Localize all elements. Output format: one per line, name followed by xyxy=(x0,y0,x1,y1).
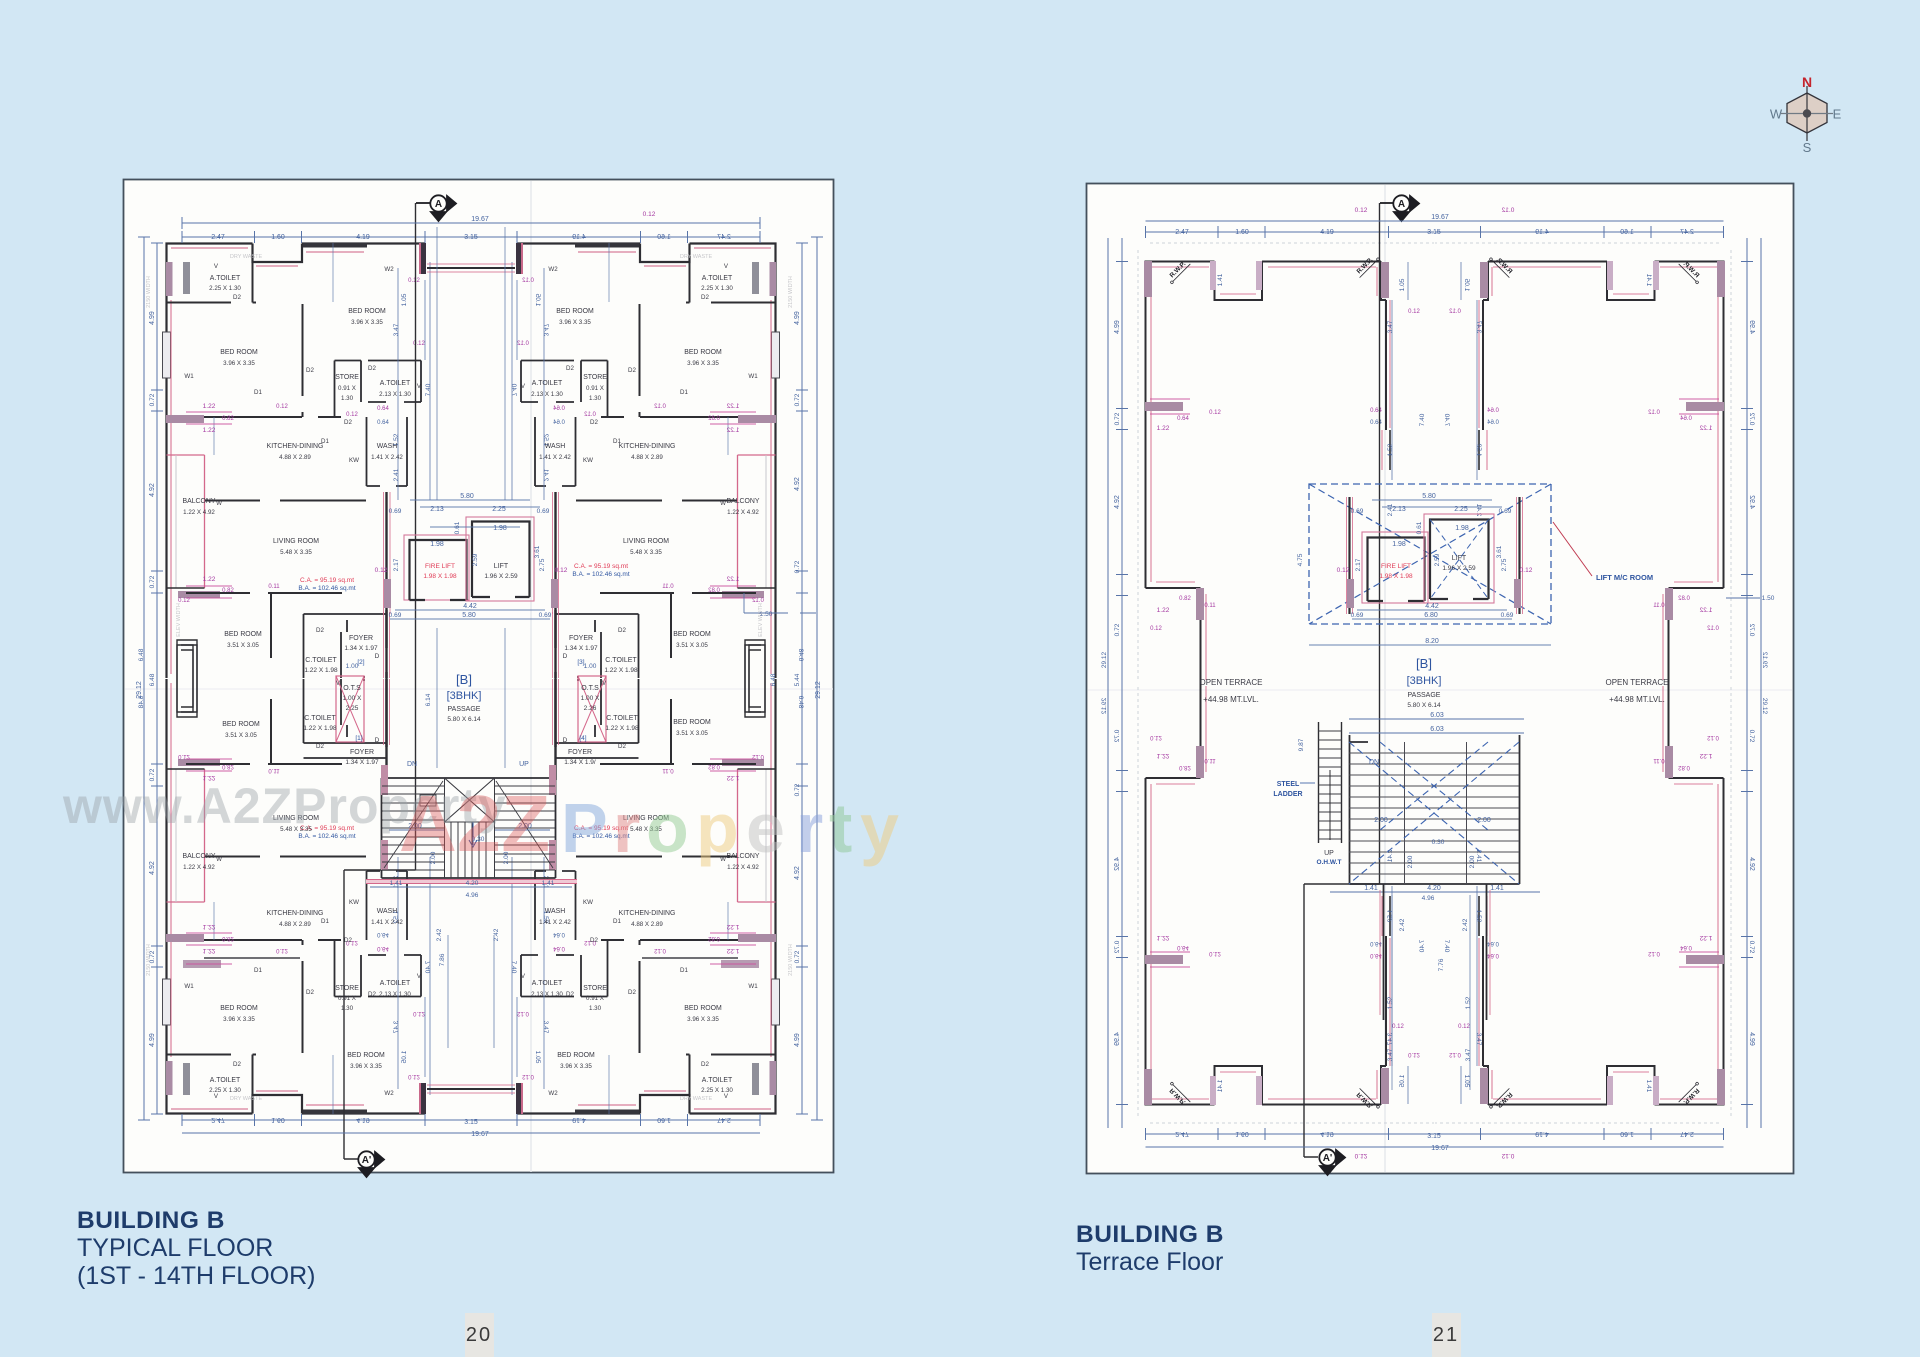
svg-text:1.98: 1.98 xyxy=(430,541,444,548)
svg-text:29.12: 29.12 xyxy=(136,681,143,699)
svg-text:4.42: 4.42 xyxy=(463,603,477,610)
svg-text:DRY WASTE: DRY WASTE xyxy=(230,1096,263,1102)
svg-text:6.14: 6.14 xyxy=(425,693,432,706)
svg-text:2.00: 2.00 xyxy=(1407,855,1414,868)
svg-text:LIFT M/C ROOM: LIFT M/C ROOM xyxy=(1596,573,1653,582)
svg-text:KW: KW xyxy=(583,899,593,906)
svg-text:1.52: 1.52 xyxy=(1465,996,1472,1009)
svg-text:0.69: 0.69 xyxy=(537,508,550,515)
svg-text:FOYER: FOYER xyxy=(350,749,374,756)
svg-text:C.A. = 95.19 sq.mt: C.A. = 95.19 sq.mt xyxy=(300,577,354,584)
svg-text:OPEN TERRACE: OPEN TERRACE xyxy=(1200,678,1263,687)
svg-text:[4]: [4] xyxy=(579,735,586,742)
svg-text:e: e xyxy=(746,789,785,867)
svg-text:C.TOILET: C.TOILET xyxy=(305,657,337,664)
svg-text:D2: D2 xyxy=(316,627,324,634)
svg-text:3.96 X 3.35: 3.96 X 3.35 xyxy=(559,319,591,326)
svg-text:t: t xyxy=(829,789,852,867)
svg-text:D1: D1 xyxy=(254,389,262,396)
svg-text:O.H.W.T: O.H.W.T xyxy=(1317,859,1342,866)
svg-text:0.69: 0.69 xyxy=(539,612,552,619)
svg-text:2.25: 2.25 xyxy=(492,506,506,513)
svg-text:6.48: 6.48 xyxy=(770,673,777,686)
svg-text:[3BHK]: [3BHK] xyxy=(447,690,482,702)
svg-text:O.T.S: O.T.S xyxy=(581,685,599,692)
svg-text:D2: D2 xyxy=(344,937,352,944)
svg-text:1.98: 1.98 xyxy=(1392,541,1406,548)
svg-text:C.A. = 95.19 sq.mt: C.A. = 95.19 sq.mt xyxy=(574,563,628,570)
svg-text:2.13: 2.13 xyxy=(1392,506,1406,513)
svg-text:UP: UP xyxy=(1324,850,1334,857)
svg-text:DN: DN xyxy=(407,761,417,768)
svg-text:4.92: 4.92 xyxy=(149,861,156,875)
svg-text:W2: W2 xyxy=(548,1090,558,1097)
svg-text:0.61: 0.61 xyxy=(1416,521,1423,534)
svg-text:0.69: 0.69 xyxy=(389,612,402,619)
svg-text:3.47: 3.47 xyxy=(1465,1048,1472,1061)
svg-text:BUILDING B: BUILDING B xyxy=(77,1207,225,1234)
svg-text:2.25: 2.25 xyxy=(346,705,359,712)
svg-text:[B]: [B] xyxy=(1416,656,1432,671)
svg-text:TYPICAL FLOOR: TYPICAL FLOOR xyxy=(77,1234,273,1262)
svg-text:B.A. = 102.46 sq.mt: B.A. = 102.46 sq.mt xyxy=(298,585,355,592)
svg-text:r: r xyxy=(796,789,823,867)
svg-text:DN: DN xyxy=(1369,759,1379,766)
svg-text:1.41 X 2.42: 1.41 X 2.42 xyxy=(539,454,571,461)
svg-text:4.88 X 2.89: 4.88 X 2.89 xyxy=(279,454,311,461)
svg-text:19.67: 19.67 xyxy=(471,1131,489,1138)
svg-text:STORE: STORE xyxy=(335,374,359,381)
svg-text:LADDER: LADDER xyxy=(1273,791,1302,798)
svg-text:1.96 X 2.59: 1.96 X 2.59 xyxy=(1442,565,1476,572)
svg-text:6.80: 6.80 xyxy=(1424,612,1438,619)
svg-text:0.91 X: 0.91 X xyxy=(586,995,604,1002)
svg-text:4.75: 4.75 xyxy=(1297,553,1304,566)
svg-text:A.TOILET: A.TOILET xyxy=(702,275,733,282)
svg-text:BALCONY: BALCONY xyxy=(183,853,216,860)
svg-text:OPEN TERRACE: OPEN TERRACE xyxy=(1606,678,1669,687)
svg-text:1.00 X: 1.00 X xyxy=(581,695,600,702)
svg-text:2.00: 2.00 xyxy=(1469,855,1476,868)
svg-text:0.12: 0.12 xyxy=(1337,567,1350,574)
svg-text:1.41 X 2.42: 1.41 X 2.42 xyxy=(371,454,403,461)
svg-text:KITCHEN-DINING: KITCHEN-DINING xyxy=(267,443,324,450)
svg-text:0.12: 0.12 xyxy=(1458,1024,1470,1030)
svg-text:D1: D1 xyxy=(254,967,262,974)
svg-text:BED ROOM: BED ROOM xyxy=(224,631,262,638)
svg-text:BED ROOM: BED ROOM xyxy=(684,349,722,356)
svg-text:3.51 X 3.05: 3.51 X 3.05 xyxy=(227,642,259,649)
svg-text:A.TOILET: A.TOILET xyxy=(532,380,563,387)
svg-text:N: N xyxy=(1802,74,1812,90)
svg-text:2.59: 2.59 xyxy=(1434,553,1441,566)
svg-text:5.80: 5.80 xyxy=(1422,493,1436,500)
svg-text:ELEV WIDTH: ELEV WIDTH xyxy=(176,603,182,637)
svg-text:5.80: 5.80 xyxy=(460,493,474,500)
svg-text:D2: D2 xyxy=(628,989,636,996)
svg-text:A: A xyxy=(435,199,442,210)
svg-text:LIVING ROOM: LIVING ROOM xyxy=(623,538,669,545)
svg-text:0.91 X: 0.91 X xyxy=(338,385,356,392)
svg-text:2150 WIDTH: 2150 WIDTH xyxy=(146,276,152,308)
svg-text:2.42: 2.42 xyxy=(1462,918,1469,931)
svg-text:FIRE LIFT: FIRE LIFT xyxy=(1381,563,1411,570)
svg-text:0.12: 0.12 xyxy=(555,567,568,574)
svg-text:3.96 X 3.35: 3.96 X 3.35 xyxy=(687,360,719,367)
svg-text:2.13 X 1.30: 2.13 X 1.30 xyxy=(379,391,411,398)
svg-text:2150 WIDTH: 2150 WIDTH xyxy=(788,276,794,308)
svg-text:4.99: 4.99 xyxy=(149,1033,156,1047)
svg-text:4.92: 4.92 xyxy=(794,866,801,880)
svg-text:4.88 X 2.89: 4.88 X 2.89 xyxy=(631,454,663,461)
svg-text:D1: D1 xyxy=(613,438,621,445)
svg-text:2.25 X 1.30: 2.25 X 1.30 xyxy=(209,285,241,292)
svg-text:UP: UP xyxy=(519,761,529,768)
svg-text:D2: D2 xyxy=(566,991,574,998)
svg-text:BED ROOM: BED ROOM xyxy=(556,308,594,315)
svg-text:4.99: 4.99 xyxy=(794,1033,801,1047)
svg-text:1.41 X 2.42: 1.41 X 2.42 xyxy=(539,919,571,926)
svg-text:3.47: 3.47 xyxy=(1387,1048,1394,1061)
svg-text:D: D xyxy=(563,653,568,660)
svg-text:1.22 X 4.92: 1.22 X 4.92 xyxy=(183,509,215,516)
svg-text:3.15: 3.15 xyxy=(464,1119,478,1126)
svg-text:1.41 X 2.42: 1.41 X 2.42 xyxy=(371,919,403,926)
svg-text:1.30: 1.30 xyxy=(341,1005,354,1012)
svg-text:W1: W1 xyxy=(184,373,194,380)
svg-text:2.00: 2.00 xyxy=(1374,817,1388,824)
svg-text:BALCONY: BALCONY xyxy=(183,498,216,505)
svg-text:D1: D1 xyxy=(321,918,329,925)
svg-text:1.41: 1.41 xyxy=(390,880,403,887)
svg-text:3.96 X 3.35: 3.96 X 3.35 xyxy=(351,319,383,326)
svg-text:3.61: 3.61 xyxy=(1496,545,1503,558)
svg-text:1.30: 1.30 xyxy=(589,395,602,402)
svg-text:2.00: 2.00 xyxy=(1477,817,1491,824)
svg-text:B.A. = 102.46 sq.mt: B.A. = 102.46 sq.mt xyxy=(572,571,629,578)
svg-text:1.96 X 2.59: 1.96 X 2.59 xyxy=(484,573,518,580)
svg-text:V: V xyxy=(602,681,606,687)
svg-text:1.41: 1.41 xyxy=(542,880,555,887)
svg-text:W: W xyxy=(216,856,222,863)
svg-text:1.30: 1.30 xyxy=(341,395,354,402)
svg-text:(1ST - 14TH FLOOR): (1ST - 14TH FLOOR) xyxy=(77,1262,315,1290)
svg-text:1.34 X 1.97: 1.34 X 1.97 xyxy=(345,759,379,766)
svg-text:0.69: 0.69 xyxy=(1351,612,1364,619)
svg-text:C.TOILET: C.TOILET xyxy=(304,715,336,722)
svg-text:D2: D2 xyxy=(701,1061,709,1068)
svg-text:1.98 X 1.98: 1.98 X 1.98 xyxy=(423,573,457,580)
svg-text:BED ROOM: BED ROOM xyxy=(684,1005,722,1012)
svg-text:D2: D2 xyxy=(618,627,626,634)
svg-text:29.12: 29.12 xyxy=(815,681,822,699)
svg-text:D1: D1 xyxy=(613,918,621,925)
svg-text:KW: KW xyxy=(349,899,359,906)
svg-text:3.15: 3.15 xyxy=(1427,229,1441,236)
svg-text:2.25 X 1.30: 2.25 X 1.30 xyxy=(701,285,733,292)
svg-text:1.22 X 1.98: 1.22 X 1.98 xyxy=(303,725,337,732)
svg-text:0.12: 0.12 xyxy=(1520,567,1533,574)
svg-text:0.30: 0.30 xyxy=(1432,839,1445,846)
svg-text:4.96: 4.96 xyxy=(1422,895,1435,902)
svg-text:O.T.S: O.T.S xyxy=(343,685,361,692)
svg-text:0.72: 0.72 xyxy=(794,560,801,573)
svg-text:WASH: WASH xyxy=(545,908,565,915)
svg-text:WASH: WASH xyxy=(545,443,565,450)
svg-text:DRY WASTE: DRY WASTE xyxy=(680,1096,713,1102)
svg-text:2.26: 2.26 xyxy=(584,705,597,712)
svg-text:W: W xyxy=(1770,107,1783,122)
svg-text:DRY WASTE: DRY WASTE xyxy=(230,254,263,260)
svg-text:4.88 X 2.89: 4.88 X 2.89 xyxy=(279,921,311,928)
svg-text:6.48: 6.48 xyxy=(149,673,156,686)
svg-text:W2: W2 xyxy=(384,266,394,273)
svg-text:3.96 X 3.35: 3.96 X 3.35 xyxy=(223,360,255,367)
svg-text:21: 21 xyxy=(1433,1324,1459,1346)
svg-text:3.51 X 3.05: 3.51 X 3.05 xyxy=(676,730,708,737)
svg-text:W2: W2 xyxy=(384,1090,394,1097)
svg-text:2150 WIDTH: 2150 WIDTH xyxy=(146,944,152,976)
svg-text:1.52: 1.52 xyxy=(1387,996,1394,1009)
svg-text:W1: W1 xyxy=(184,983,194,990)
svg-text:0.61: 0.61 xyxy=(454,521,461,534)
svg-text:3.51 X 3.05: 3.51 X 3.05 xyxy=(676,642,708,649)
svg-text:LIVING ROOM: LIVING ROOM xyxy=(273,538,319,545)
svg-text:BED ROOM: BED ROOM xyxy=(347,1052,385,1059)
svg-text:P: P xyxy=(561,789,608,867)
svg-text:0.12: 0.12 xyxy=(375,567,388,574)
svg-text:STORE: STORE xyxy=(335,985,359,992)
svg-text:2.13 X 1.30: 2.13 X 1.30 xyxy=(379,991,411,998)
svg-text:FOYER: FOYER xyxy=(349,635,373,642)
svg-text:5.44: 5.44 xyxy=(794,673,801,686)
svg-text:r: r xyxy=(613,789,640,867)
svg-text:0.69: 0.69 xyxy=(389,508,402,515)
svg-text:[3BHK]: [3BHK] xyxy=(1407,675,1442,687)
svg-text:Terrace Floor: Terrace Floor xyxy=(1076,1248,1223,1276)
svg-text:3.61: 3.61 xyxy=(534,545,541,558)
svg-text:2.59: 2.59 xyxy=(472,553,479,566)
svg-text:3.15: 3.15 xyxy=(1427,1133,1441,1140)
svg-text:A: A xyxy=(1398,199,1405,210)
svg-text:2.13: 2.13 xyxy=(430,506,444,513)
svg-text:D1: D1 xyxy=(680,389,688,396)
svg-text:2.17: 2.17 xyxy=(1355,558,1362,571)
svg-text:4.92: 4.92 xyxy=(794,477,801,491)
svg-text:ELEV WIDTH: ELEV WIDTH xyxy=(758,603,764,637)
svg-text:19.67: 19.67 xyxy=(471,216,489,223)
svg-text:D2: D2 xyxy=(628,367,636,374)
svg-text:BED ROOM: BED ROOM xyxy=(220,1005,258,1012)
svg-text:y: y xyxy=(860,789,899,867)
svg-text:1.22 X 4.92: 1.22 X 4.92 xyxy=(727,509,759,516)
svg-text:0.91 X: 0.91 X xyxy=(338,995,356,1002)
svg-text:1.00: 1.00 xyxy=(346,663,359,670)
svg-text:0.69: 0.69 xyxy=(1351,508,1364,515)
svg-text:5.48 X 3.35: 5.48 X 3.35 xyxy=(280,549,312,556)
svg-text:D2: D2 xyxy=(233,1061,241,1068)
svg-text:STORE: STORE xyxy=(583,374,607,381)
svg-text:WASH: WASH xyxy=(377,443,397,450)
svg-text:0.12: 0.12 xyxy=(643,211,656,218)
svg-text:1.41: 1.41 xyxy=(1364,885,1378,892)
svg-text:4.96: 4.96 xyxy=(466,892,479,899)
svg-text:D2: D2 xyxy=(590,937,598,944)
svg-text:W1: W1 xyxy=(748,373,758,380)
svg-text:1.22 X 4.92: 1.22 X 4.92 xyxy=(183,864,215,871)
svg-text:1.50: 1.50 xyxy=(1762,595,1775,602)
svg-text:BED ROOM: BED ROOM xyxy=(222,721,260,728)
svg-text:4.88 X 2.89: 4.88 X 2.89 xyxy=(631,921,663,928)
svg-text:5.80 X 6.14: 5.80 X 6.14 xyxy=(447,716,481,723)
svg-text:D2: D2 xyxy=(590,419,598,426)
svg-text:D1: D1 xyxy=(321,438,329,445)
svg-text:3.15: 3.15 xyxy=(464,234,478,241)
svg-text:4.92: 4.92 xyxy=(149,483,156,497)
svg-text:20: 20 xyxy=(466,1324,492,1346)
svg-text:3.96 X 3.35: 3.96 X 3.35 xyxy=(223,1016,255,1023)
svg-text:7.86: 7.86 xyxy=(439,953,446,966)
svg-text:A.TOILET: A.TOILET xyxy=(380,980,411,987)
svg-text:7.76: 7.76 xyxy=(1438,958,1445,971)
svg-text:+44.98 MT.LVL.: +44.98 MT.LVL. xyxy=(1609,695,1665,704)
svg-text:BUILDING B: BUILDING B xyxy=(1076,1221,1224,1248)
svg-text:FIRE LIFT: FIRE LIFT xyxy=(425,563,455,570)
svg-text:1.00 X: 1.00 X xyxy=(343,695,362,702)
svg-text:2.75: 2.75 xyxy=(1501,558,1508,571)
svg-text:4.20: 4.20 xyxy=(466,880,479,887)
svg-text:2.17: 2.17 xyxy=(393,558,400,571)
svg-text:PASSAGE: PASSAGE xyxy=(1408,692,1441,699)
svg-text:2.25: 2.25 xyxy=(1454,506,1468,513)
svg-text:1.34 X 1.9/: 1.34 X 1.9/ xyxy=(564,759,596,766)
svg-text:BED ROOM: BED ROOM xyxy=(220,349,258,356)
svg-text:LIFT: LIFT xyxy=(494,563,509,570)
svg-text:D2: D2 xyxy=(368,991,376,998)
svg-text:3.96 X 3.35: 3.96 X 3.35 xyxy=(687,1016,719,1023)
svg-text:6.03: 6.03 xyxy=(1430,712,1444,719)
svg-text:D2: D2 xyxy=(306,367,314,374)
svg-text:2.13 X 1.30: 2.13 X 1.30 xyxy=(531,391,563,398)
svg-text:D2: D2 xyxy=(344,419,352,426)
svg-text:D2: D2 xyxy=(233,294,241,301)
svg-text:D1: D1 xyxy=(680,967,688,974)
svg-text:19.67: 19.67 xyxy=(1431,1145,1449,1152)
svg-text:D2: D2 xyxy=(368,365,376,372)
svg-text:0.72: 0.72 xyxy=(149,575,156,588)
svg-text:3.51 X 3.05: 3.51 X 3.05 xyxy=(225,732,257,739)
svg-text:1.30: 1.30 xyxy=(589,1005,602,1012)
svg-text:4.42: 4.42 xyxy=(1425,603,1439,610)
svg-text:A.TOILET: A.TOILET xyxy=(380,380,411,387)
svg-text:A': A' xyxy=(362,1155,372,1166)
svg-text:D: D xyxy=(563,737,568,744)
svg-text:1.98 X 1.98: 1.98 X 1.98 xyxy=(1379,573,1413,580)
svg-text:D2: D2 xyxy=(618,743,626,750)
svg-text:A.TOILET: A.TOILET xyxy=(210,275,241,282)
svg-text:0.12: 0.12 xyxy=(1392,1024,1404,1030)
svg-text:2.13 X 1.30: 2.13 X 1.30 xyxy=(531,991,563,998)
svg-text:8.20: 8.20 xyxy=(1425,638,1439,645)
svg-text:BED ROOM: BED ROOM xyxy=(673,631,711,638)
svg-text:0.72: 0.72 xyxy=(794,950,801,963)
svg-text:W1: W1 xyxy=(748,983,758,990)
svg-text:6.03: 6.03 xyxy=(1430,726,1444,733)
svg-text:DRY WASTE: DRY WASTE xyxy=(680,254,713,260)
svg-text:p: p xyxy=(696,789,739,867)
svg-text:W2: W2 xyxy=(548,266,558,273)
svg-text:[B]: [B] xyxy=(456,672,472,687)
svg-text:BED ROOM: BED ROOM xyxy=(348,308,386,315)
svg-text:2.25 X 1.30: 2.25 X 1.30 xyxy=(701,1087,733,1094)
svg-text:V: V xyxy=(336,681,340,687)
svg-text:[2]: [2] xyxy=(357,659,364,666)
svg-text:STEEL: STEEL xyxy=(1277,781,1300,788)
svg-text:A.TOILET: A.TOILET xyxy=(532,980,563,987)
svg-text:D2: D2 xyxy=(306,989,314,996)
svg-text:D2: D2 xyxy=(316,743,324,750)
svg-text:1.98: 1.98 xyxy=(493,525,507,532)
svg-text:A.TOILET: A.TOILET xyxy=(702,1077,733,1084)
svg-text:5.80 X 6.14: 5.80 X 6.14 xyxy=(1407,702,1441,709)
svg-text:W: W xyxy=(720,500,726,507)
svg-text:E: E xyxy=(1833,107,1842,122)
svg-text:KITCHEN-DINING: KITCHEN-DINING xyxy=(267,910,324,917)
svg-text:C.TOILET: C.TOILET xyxy=(606,715,638,722)
svg-text:1.34 X 1.97: 1.34 X 1.97 xyxy=(344,645,378,652)
svg-text:FOYER: FOYER xyxy=(568,749,592,756)
svg-text:1.41: 1.41 xyxy=(1490,885,1504,892)
svg-text:0.69: 0.69 xyxy=(1499,508,1512,515)
svg-text:[1]: [1] xyxy=(355,735,362,742)
svg-text:4.99: 4.99 xyxy=(794,311,801,325)
svg-text:2.75: 2.75 xyxy=(539,558,546,571)
svg-text:LIFT: LIFT xyxy=(1452,555,1467,562)
svg-text:D2: D2 xyxy=(566,365,574,372)
svg-text:W: W xyxy=(216,500,222,507)
svg-text:4.20: 4.20 xyxy=(1427,885,1441,892)
svg-text:+44.98 MT.LVL.: +44.98 MT.LVL. xyxy=(1203,695,1259,704)
svg-text:PASSAGE: PASSAGE xyxy=(448,706,481,713)
svg-text:BED ROOM: BED ROOM xyxy=(673,719,711,726)
svg-text:0.72: 0.72 xyxy=(794,393,801,406)
svg-text:4.99: 4.99 xyxy=(149,311,156,325)
svg-text:D2: D2 xyxy=(701,294,709,301)
svg-text:A': A' xyxy=(1323,1153,1333,1164)
svg-text:KW: KW xyxy=(349,457,359,464)
svg-text:0.72: 0.72 xyxy=(149,393,156,406)
svg-text:1.98: 1.98 xyxy=(1455,525,1469,532)
svg-text:STORE: STORE xyxy=(583,985,607,992)
svg-text:o: o xyxy=(646,789,689,867)
svg-text:FOYER: FOYER xyxy=(569,635,593,642)
svg-text:1.00: 1.00 xyxy=(584,663,597,670)
svg-text:0.91 X: 0.91 X xyxy=(586,385,604,392)
svg-text:3.96 X 3.35: 3.96 X 3.35 xyxy=(560,1063,592,1070)
svg-text:A2Z: A2Z xyxy=(399,779,550,868)
svg-text:1.34 X 1.97: 1.34 X 1.97 xyxy=(564,645,598,652)
svg-text:1.22 X 1.98: 1.22 X 1.98 xyxy=(605,725,639,732)
svg-text:2.42: 2.42 xyxy=(436,928,443,941)
svg-text:1.22 X 1.98: 1.22 X 1.98 xyxy=(604,667,638,674)
svg-text:C.TOILET: C.TOILET xyxy=(605,657,637,664)
svg-text:5.80: 5.80 xyxy=(462,612,476,619)
svg-text:KW: KW xyxy=(583,457,593,464)
svg-text:WASH: WASH xyxy=(377,908,397,915)
svg-text:S: S xyxy=(1803,140,1812,155)
svg-text:1.22 X 1.98: 1.22 X 1.98 xyxy=(304,667,338,674)
svg-text:2.42: 2.42 xyxy=(1399,918,1406,931)
